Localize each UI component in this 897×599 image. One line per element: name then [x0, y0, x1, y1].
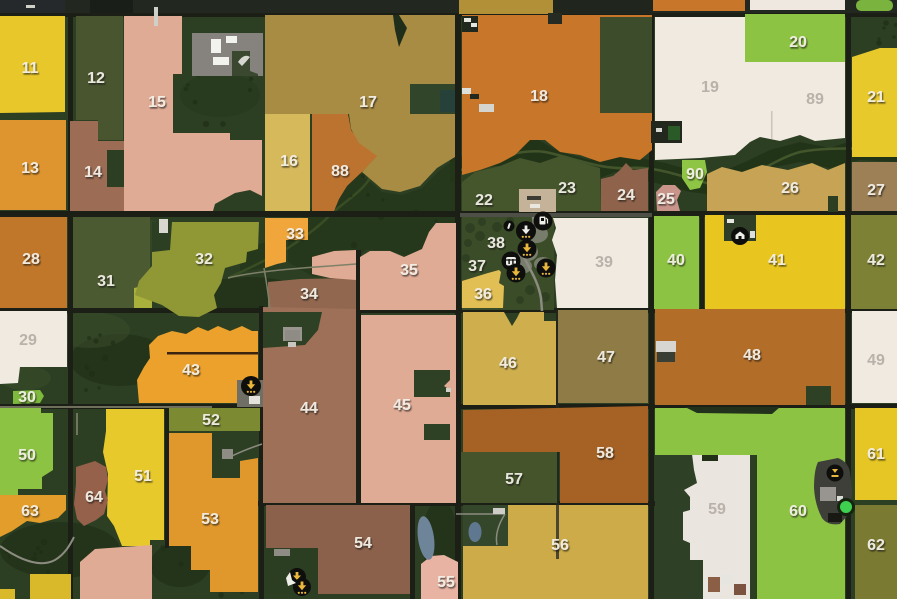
svg-text:36: 36 [474, 286, 492, 303]
svg-text:62: 62 [867, 537, 885, 554]
svg-text:26: 26 [781, 180, 799, 197]
svg-text:35: 35 [400, 262, 418, 279]
svg-text:64: 64 [85, 489, 103, 506]
svg-text:63: 63 [21, 503, 39, 520]
svg-text:29: 29 [19, 332, 37, 349]
svg-text:57: 57 [505, 471, 523, 488]
svg-text:13: 13 [21, 160, 39, 177]
svg-text:34: 34 [300, 286, 318, 303]
svg-text:27: 27 [867, 182, 885, 199]
svg-text:42: 42 [867, 252, 885, 269]
svg-text:11: 11 [22, 60, 39, 77]
svg-text:20: 20 [789, 34, 807, 51]
svg-text:43: 43 [182, 362, 200, 379]
svg-text:23: 23 [558, 180, 576, 197]
svg-text:54: 54 [354, 535, 372, 552]
svg-text:41: 41 [768, 252, 786, 269]
svg-text:28: 28 [22, 251, 40, 268]
svg-text:18: 18 [530, 88, 548, 105]
svg-text:38: 38 [487, 235, 505, 252]
svg-text:21: 21 [867, 89, 885, 106]
svg-text:55: 55 [437, 574, 455, 591]
svg-text:16: 16 [280, 153, 298, 170]
svg-text:44: 44 [300, 400, 318, 417]
svg-text:39: 39 [595, 254, 613, 271]
svg-text:15: 15 [148, 94, 166, 111]
svg-text:59: 59 [708, 501, 726, 518]
svg-text:25: 25 [657, 191, 675, 208]
svg-text:30: 30 [18, 389, 36, 406]
svg-text:50: 50 [18, 447, 36, 464]
svg-text:89: 89 [806, 91, 824, 108]
svg-text:61: 61 [867, 446, 885, 463]
svg-text:33: 33 [286, 226, 304, 243]
svg-text:17: 17 [359, 94, 377, 111]
svg-text:90: 90 [686, 166, 704, 183]
svg-text:46: 46 [499, 355, 517, 372]
svg-text:22: 22 [475, 192, 493, 209]
svg-text:24: 24 [617, 187, 635, 204]
svg-text:19: 19 [701, 79, 719, 96]
svg-text:88: 88 [331, 163, 349, 180]
svg-text:56: 56 [551, 537, 569, 554]
svg-text:51: 51 [134, 468, 152, 485]
svg-text:58: 58 [596, 445, 614, 462]
svg-text:45: 45 [393, 397, 411, 414]
svg-text:60: 60 [789, 503, 807, 520]
svg-text:12: 12 [87, 70, 105, 87]
svg-text:53: 53 [201, 511, 219, 528]
svg-text:52: 52 [202, 412, 220, 429]
svg-text:14: 14 [84, 164, 102, 181]
svg-text:48: 48 [743, 347, 761, 364]
svg-text:40: 40 [667, 252, 685, 269]
svg-text:47: 47 [597, 349, 615, 366]
svg-text:49: 49 [867, 352, 885, 369]
svg-text:31: 31 [97, 273, 115, 290]
svg-text:37: 37 [468, 258, 486, 275]
svg-text:32: 32 [195, 251, 213, 268]
